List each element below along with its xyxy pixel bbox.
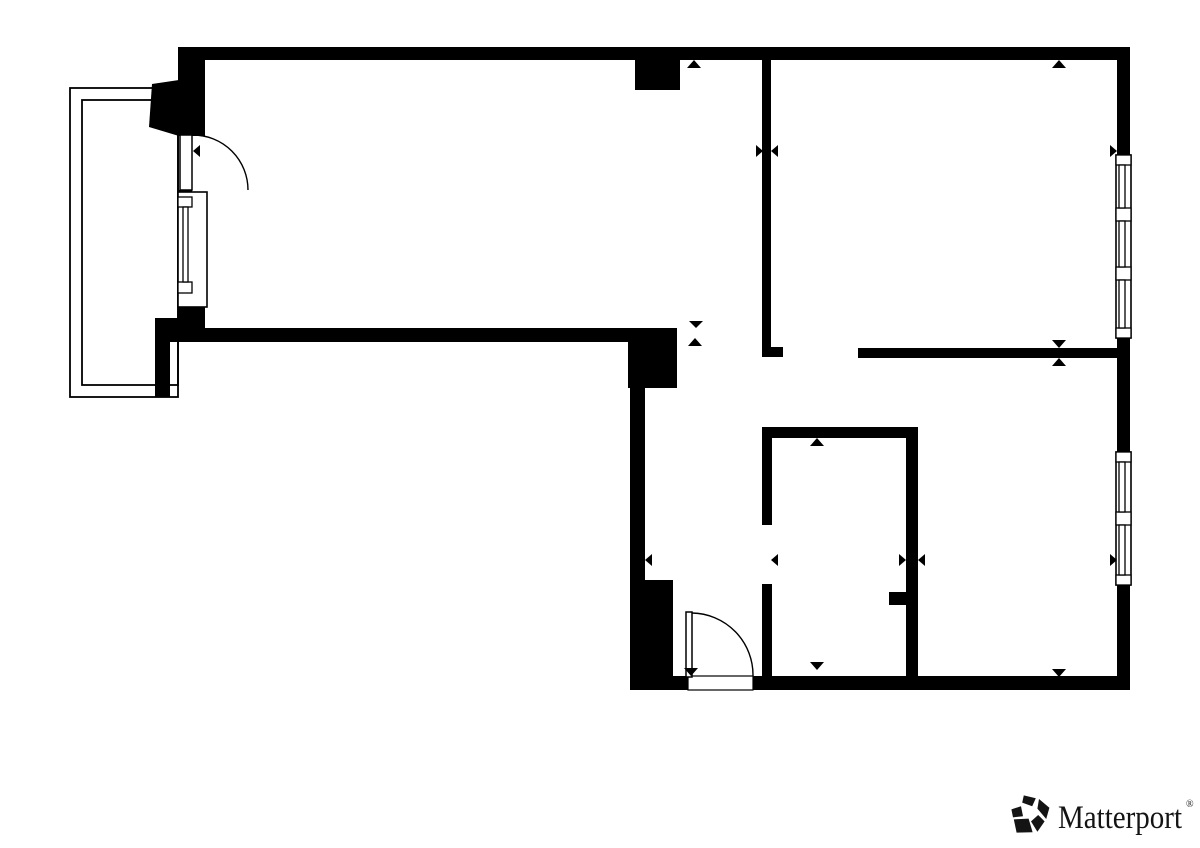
- bathroom-left-wall-lower: [762, 584, 772, 677]
- right-wall-middle: [1117, 338, 1130, 452]
- entry-door-threshold: [688, 676, 753, 690]
- bathroom-wall-stub: [889, 592, 906, 605]
- right-lower-window-glass: [1119, 525, 1125, 575]
- matterport-logo-text: Matterport: [1058, 800, 1182, 836]
- measure-arrow-left-icon: [918, 554, 925, 566]
- hall-corner-block: [628, 328, 677, 388]
- bathroom-right-wall: [906, 438, 918, 677]
- matterport-pinwheel-icon: [1011, 795, 1049, 832]
- living-room-bottom-wall: [155, 328, 677, 342]
- right-upper-window-glass: [1119, 221, 1125, 267]
- bottom-wall-right-of-door: [753, 676, 1130, 690]
- left-window-panel: [178, 197, 192, 207]
- left-window-panel: [178, 282, 192, 293]
- top-wall: [178, 47, 1130, 60]
- entry-door-swing-arc: [692, 613, 753, 676]
- top-wall-column: [635, 59, 680, 90]
- bathroom-left-wall-upper: [762, 438, 772, 525]
- bedroom-divider-foot: [762, 347, 783, 357]
- measure-arrow-up-icon: [1052, 60, 1066, 68]
- right-upper-window-glass: [1119, 165, 1125, 208]
- rooms-divider-wall: [858, 348, 1117, 358]
- measure-arrow-up-icon: [810, 438, 824, 446]
- hall-left-wall: [630, 388, 645, 580]
- entry-left-block: [630, 580, 673, 690]
- bottom-wall-left-of-door: [630, 676, 688, 690]
- measure-arrow-left-icon: [771, 554, 778, 566]
- right-lower-window-panel: [1116, 452, 1131, 462]
- right-upper-window-panel: [1116, 155, 1131, 165]
- matterport-trademark-symbol: ®: [1186, 799, 1194, 810]
- measure-arrow-left-icon: [645, 554, 652, 566]
- right-lower-window-panel: [1116, 575, 1131, 585]
- right-upper-window-glass: [1119, 280, 1125, 328]
- right-lower-window-panel: [1116, 512, 1131, 525]
- angled-wall: [149, 80, 179, 136]
- right-upper-window-panel: [1116, 267, 1131, 280]
- measure-arrow-down-icon: [810, 662, 824, 670]
- measure-arrow-right-icon: [899, 554, 906, 566]
- matterport-logo-svg: Matterport ®: [1008, 791, 1198, 839]
- floor-plan-drawing: [0, 0, 1200, 848]
- measure-arrow-down-icon: [1052, 340, 1066, 348]
- measure-arrow-down-icon: [1052, 669, 1066, 677]
- floorplan-page: Matterport ®: [0, 0, 1200, 848]
- matterport-logo: Matterport ®: [1008, 791, 1198, 844]
- right-upper-window-panel: [1116, 328, 1131, 338]
- right-wall-lower: [1117, 585, 1130, 690]
- balcony-door-leaf: [180, 135, 192, 190]
- measure-arrow-left-icon: [771, 145, 778, 157]
- right-upper-window-panel: [1116, 208, 1131, 221]
- measure-arrow-up-icon: [1052, 358, 1066, 366]
- measure-arrow-left-icon: [193, 145, 200, 157]
- measure-arrow-down-icon: [689, 321, 703, 328]
- left-wall-upper: [178, 47, 205, 136]
- left-window-glass: [183, 207, 188, 282]
- right-wall-upper: [1117, 60, 1130, 155]
- measure-arrow-up-icon: [688, 338, 702, 346]
- bedroom-divider-wall: [762, 59, 771, 357]
- measure-arrow-right-icon: [756, 145, 763, 157]
- entry-door-leaf: [686, 612, 692, 677]
- measure-arrow-up-icon: [687, 60, 701, 68]
- right-lower-window-glass: [1119, 462, 1125, 512]
- balcony-door-swing-arc: [193, 135, 248, 190]
- bathroom-top-wall: [762, 427, 918, 438]
